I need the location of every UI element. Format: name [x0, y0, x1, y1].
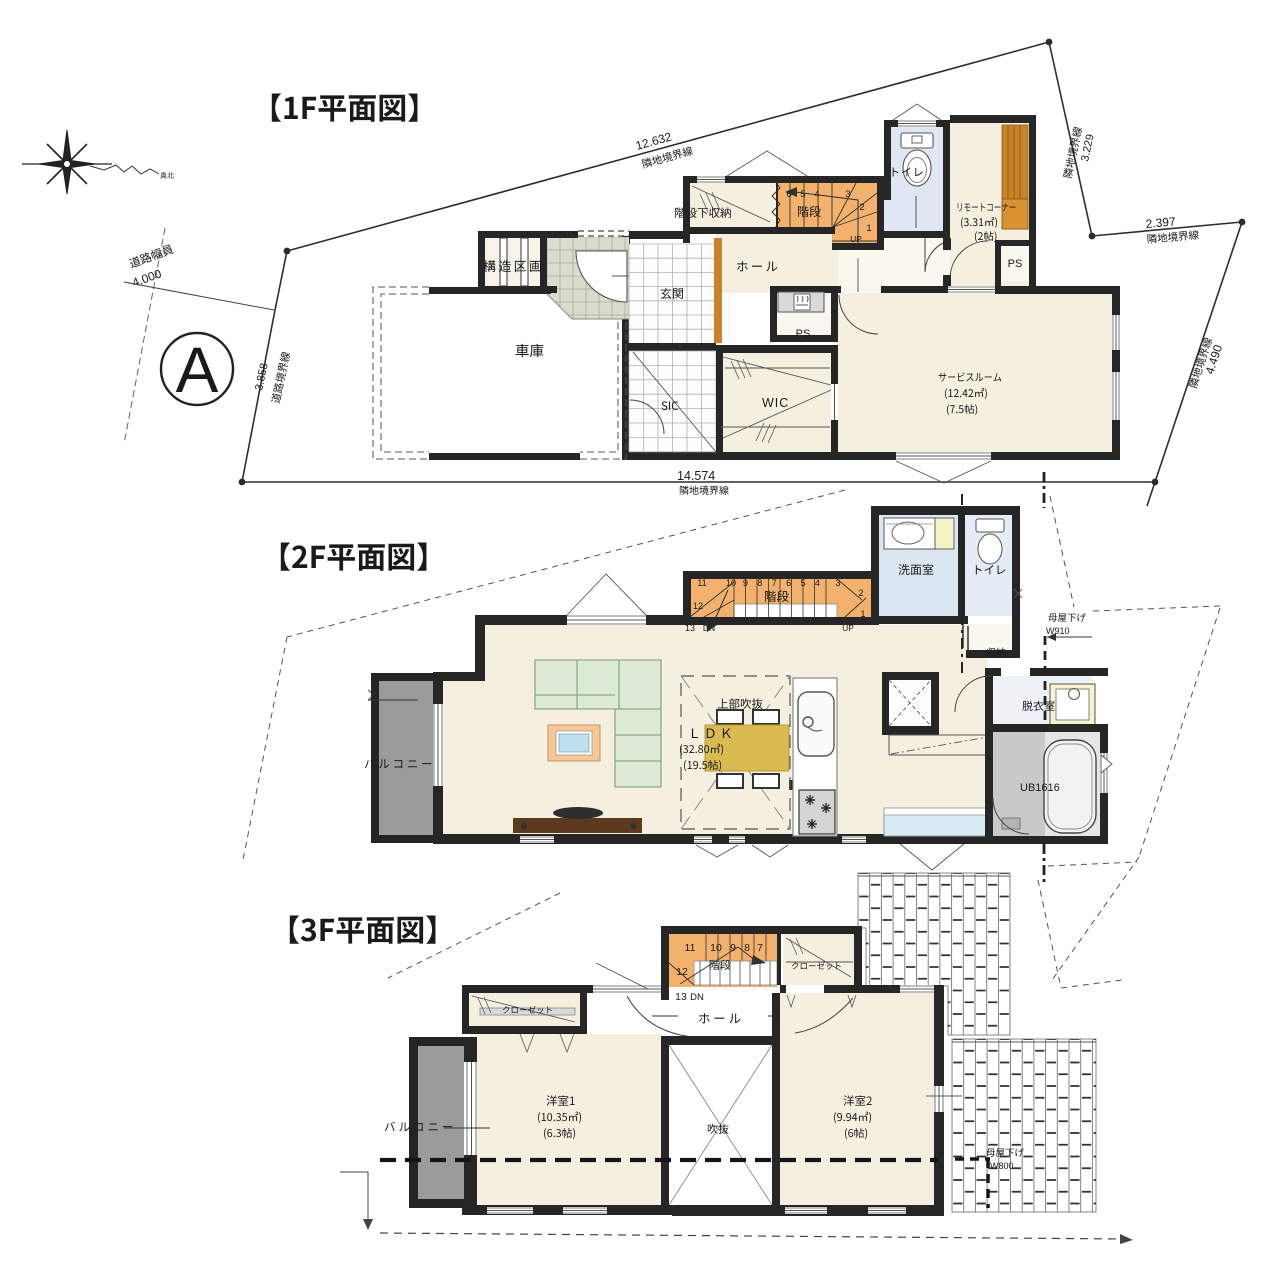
svg-text:8: 8: [757, 578, 762, 588]
svg-text:4: 4: [814, 189, 819, 200]
svg-text:W800: W800: [990, 1161, 1014, 1171]
svg-text:5: 5: [800, 578, 805, 588]
svg-text:12: 12: [676, 966, 688, 978]
svg-text:6: 6: [786, 189, 791, 200]
svg-text:3: 3: [845, 189, 850, 200]
svg-text:10: 10: [726, 578, 736, 588]
svg-text:11: 11: [685, 942, 696, 954]
svg-text:12: 12: [693, 601, 703, 611]
svg-text:9: 9: [730, 942, 736, 954]
svg-text:8: 8: [744, 942, 750, 954]
svg-text:6: 6: [786, 578, 791, 588]
svg-text:2: 2: [859, 202, 864, 213]
svg-text:2.397: 2.397: [1145, 214, 1176, 231]
svg-text:PS: PS: [796, 328, 811, 340]
svg-text:2: 2: [858, 588, 863, 598]
svg-text:UP: UP: [850, 234, 862, 244]
svg-text:7: 7: [772, 578, 777, 588]
svg-text:W910: W910: [1046, 626, 1070, 636]
svg-text:13: 13: [675, 991, 687, 1003]
svg-text:PS: PS: [1008, 258, 1023, 270]
svg-text:WIC: WIC: [762, 396, 789, 410]
svg-text:7: 7: [757, 942, 763, 954]
svg-text:4: 4: [815, 578, 820, 588]
svg-text:9: 9: [743, 578, 748, 588]
svg-text:3: 3: [835, 578, 840, 588]
svg-text:14.574: 14.574: [677, 469, 715, 483]
svg-text:DN: DN: [690, 992, 704, 1003]
svg-text:UB1616: UB1616: [1020, 782, 1060, 794]
svg-text:1: 1: [866, 223, 871, 234]
svg-text:5: 5: [800, 189, 805, 200]
svg-text:10: 10: [710, 942, 722, 954]
svg-text:11: 11: [697, 578, 706, 588]
svg-text:A: A: [176, 334, 219, 406]
